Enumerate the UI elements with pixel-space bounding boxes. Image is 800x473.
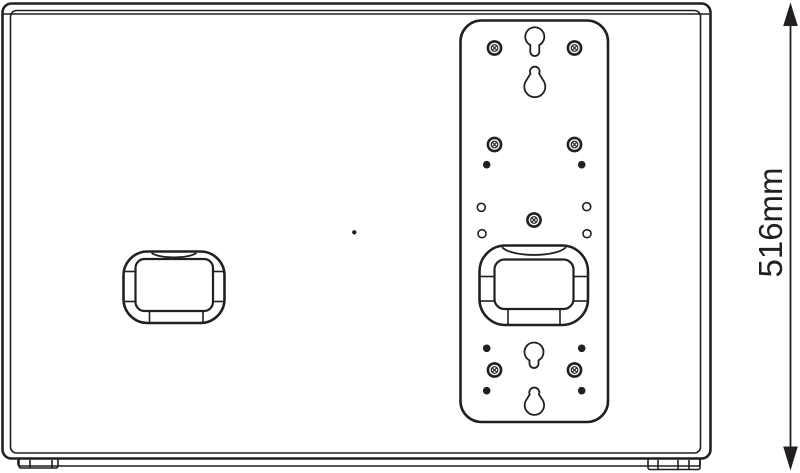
handle-rim-segments: [125, 272, 224, 323]
screw-icon: [568, 363, 581, 376]
pilot-dot-icon: [483, 387, 491, 395]
foot-pad-right: [648, 459, 700, 470]
open-hole-icon: [477, 203, 485, 211]
dimension-arrow-up-icon: [783, 3, 798, 27]
cabinet-outer-edge: [3, 4, 711, 459]
keyhole-slot-icon: [524, 67, 545, 98]
keyhole-slot-icon: [525, 388, 544, 415]
open-hole-icon: [583, 203, 591, 211]
screw-icon: [527, 213, 540, 226]
handle-grip-dip: [502, 247, 566, 255]
drawing-filled-marks: 516mm: [352, 3, 798, 471]
screw-icon: [568, 138, 581, 151]
dimension-arrow-down-icon: [783, 447, 798, 471]
handle-rim-segments: [481, 277, 588, 325]
handle-left: [124, 252, 225, 324]
open-hole-icon: [583, 230, 591, 238]
pilot-dot-icon: [483, 345, 491, 353]
screw-icon: [488, 138, 501, 151]
screw-icon: [488, 41, 501, 54]
pilot-dot-icon: [578, 345, 586, 353]
mount-plate-outline: [461, 21, 609, 423]
handle-inner-recess: [136, 259, 214, 311]
mount-plate: [461, 21, 609, 423]
drawing-linework: [3, 4, 791, 470]
handle-inner-recess: [495, 260, 574, 310]
keyhole-slot-icon: [525, 27, 544, 56]
technical-drawing-canvas: 516mm: [0, 0, 800, 473]
bottom-rail: [18, 459, 700, 470]
handle-outer-rim: [480, 246, 589, 326]
pilot-dot-icon: [578, 161, 586, 169]
panel-pilot-dot-icon: [352, 230, 356, 234]
speaker-rear-view-drawing: 516mm: [0, 0, 800, 473]
screw-icon: [488, 363, 501, 376]
dimension-label: 516mm: [752, 167, 789, 277]
handle-right: [480, 246, 589, 326]
screw-icon: [568, 41, 581, 54]
cabinet-outline: [3, 4, 711, 459]
open-hole-icon: [478, 230, 486, 238]
pilot-dot-icon: [578, 387, 586, 395]
handle-grip-dip: [152, 253, 197, 257]
pilot-dot-icon: [483, 161, 491, 169]
keyhole-slot-icon: [525, 343, 544, 368]
